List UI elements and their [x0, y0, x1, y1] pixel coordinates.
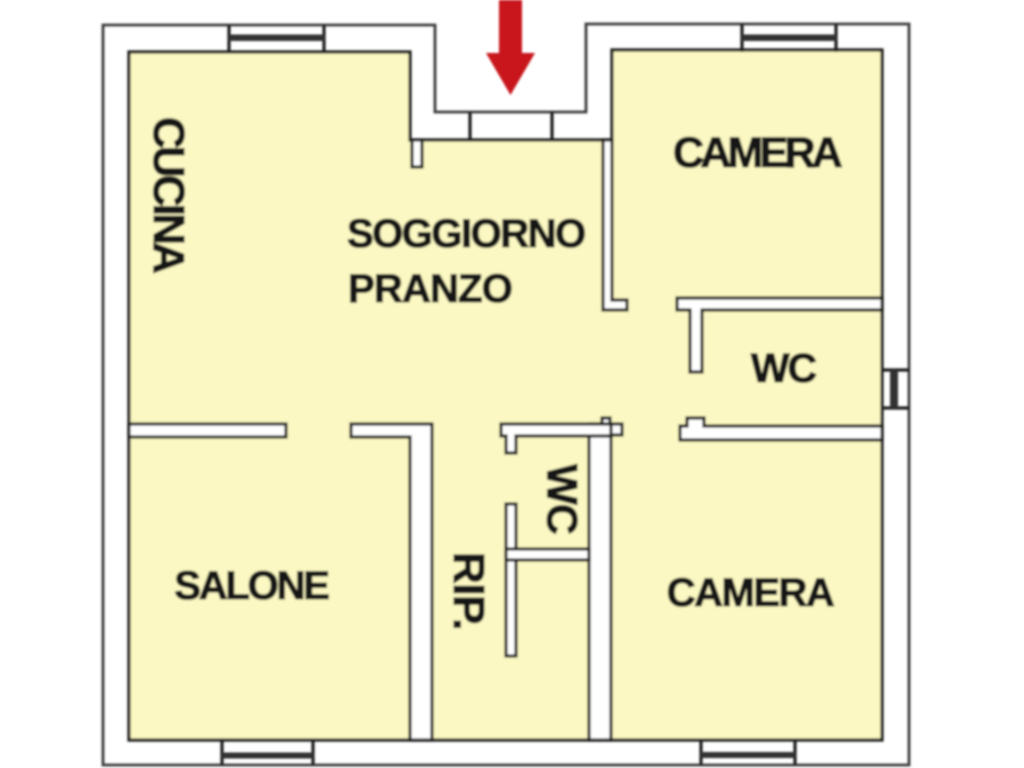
svg-text:PRANZO: PRANZO: [348, 267, 512, 311]
svg-text:CAMERA: CAMERA: [673, 129, 842, 177]
svg-text:CUCINA: CUCINA: [144, 117, 193, 273]
svg-text:WC: WC: [751, 345, 817, 391]
svg-text:CAMERA: CAMERA: [667, 571, 834, 615]
svg-text:WC: WC: [538, 464, 586, 534]
svg-text:RIP.: RIP.: [444, 552, 493, 630]
svg-text:SOGGIORNO: SOGGIORNO: [347, 212, 585, 256]
svg-text:SALONE: SALONE: [174, 564, 329, 608]
